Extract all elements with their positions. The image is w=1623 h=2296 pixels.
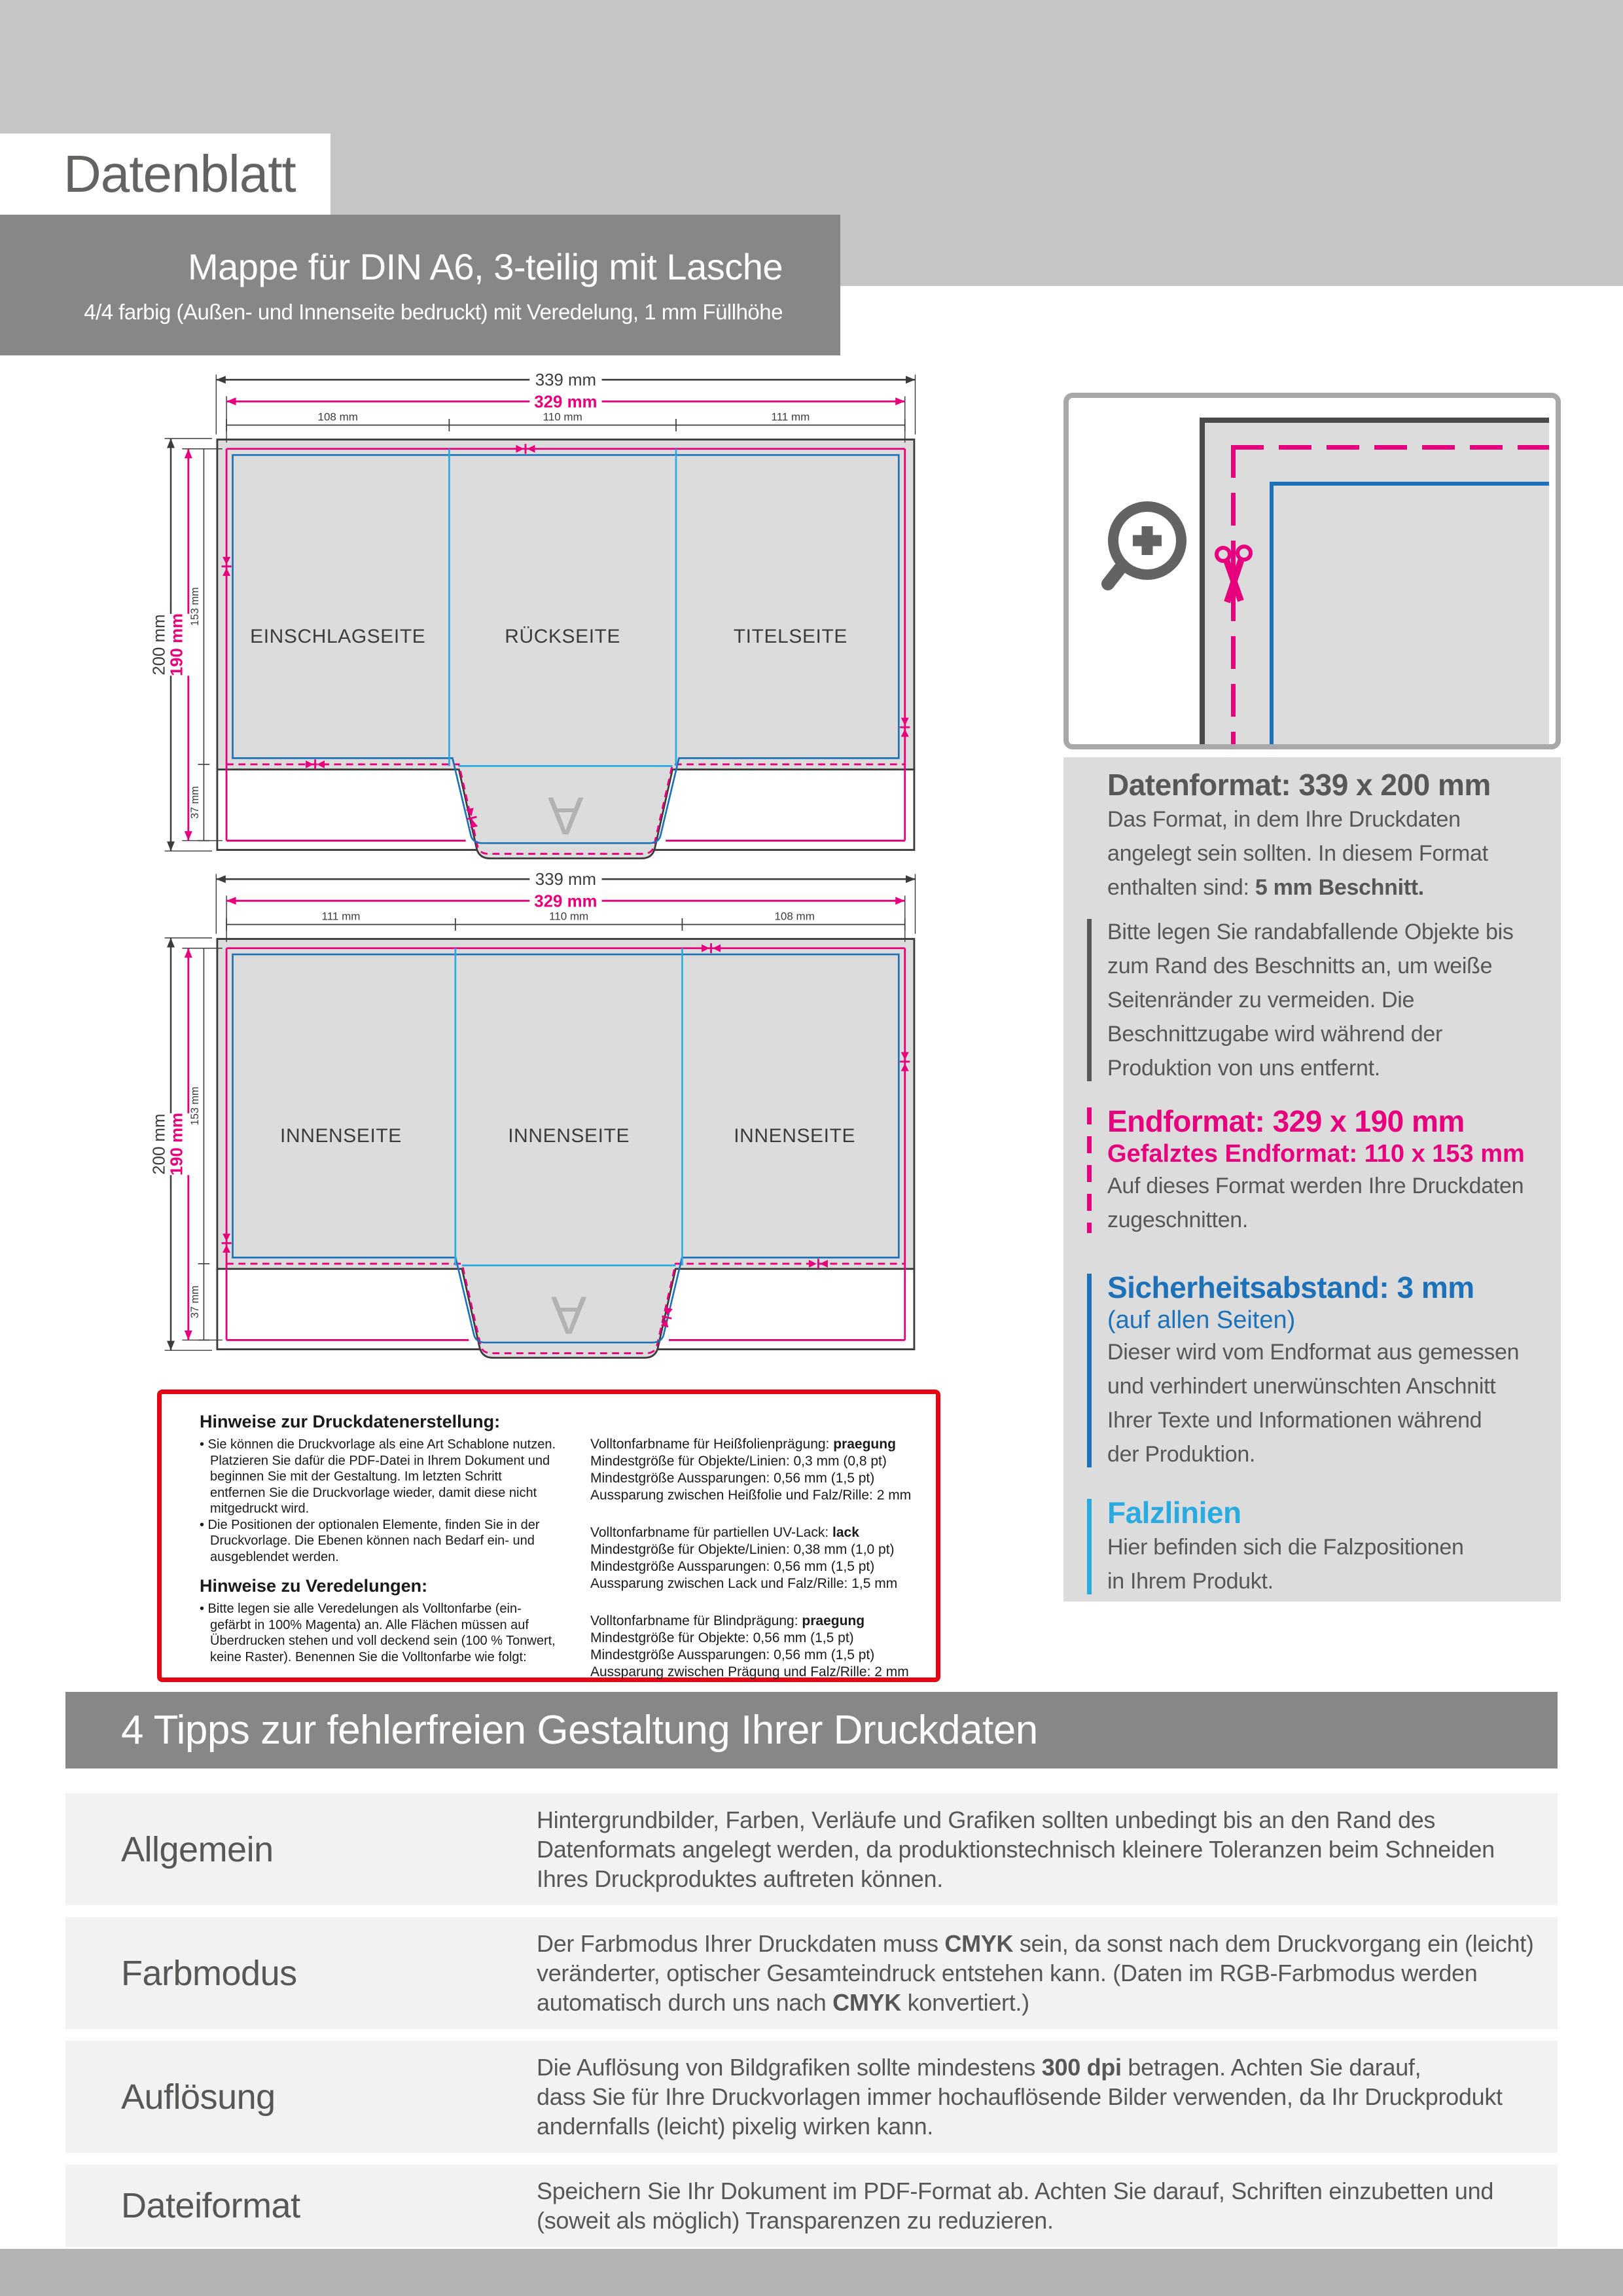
tips-section-title: 4 Tipps zur fehlerfreien Gestaltung Ihre… [65, 1707, 1038, 1753]
tip-row-text: Speichern Sie Ihr Dokument im PDF-Format… [537, 2164, 1558, 2247]
dim-label-col1: 108 mm [318, 410, 358, 423]
zoom-detail-box [1063, 393, 1561, 749]
dim-label-end-height: 190 mm [168, 613, 186, 676]
dim-line-panel-flap [198, 948, 210, 1340]
dim-line-panel-flap [198, 449, 210, 841]
dim-label-flap-height: 37 mm [189, 1285, 201, 1318]
tip-row: AllgemeinHintergrundbilder, Farben, Verl… [65, 1793, 1558, 1905]
info-block-heading: Datenformat: 339 x 200 mm [1107, 767, 1548, 802]
tips-rows: AllgemeinHintergrundbilder, Farben, Verl… [65, 1793, 1558, 2259]
info-block: Bitte legen Sie randabfallende Objekte b… [1087, 915, 1548, 1085]
notes-title: Hinweise zu Veredelungen: [200, 1575, 578, 1597]
panel-label-2: RÜCKSEITE [505, 626, 620, 647]
footer-band [0, 2249, 1623, 2296]
notes-spec-group: Volltonfarbname für Heißfolienprägung: p… [590, 1436, 931, 1504]
panel-label-1: EINSCHLAGSEITE [250, 626, 425, 647]
info-block-text: Dieser wird vom Endformat aus gemessenun… [1107, 1335, 1548, 1471]
dim-label-col2: 110 mm [543, 410, 582, 423]
product-subtitle: 4/4 farbig (Außen- und Innenseite bedruc… [84, 300, 783, 325]
dim-label-total-width: 339 mm [535, 870, 596, 889]
info-block: Datenformat: 339 x 200 mmDas Format, in … [1087, 767, 1548, 905]
info-block: Endformat: 329 x 190 mmGefalztes Endform… [1087, 1103, 1548, 1237]
info-block-heading: Sicherheitsabstand: 3 mm [1107, 1270, 1548, 1305]
diagram-inside: 339 mm 329 mm 111 mm 110 mm 108 mm 200 m… [130, 870, 936, 1375]
tip-row-label: Allgemein [121, 1829, 274, 1870]
dim-label-panel-height: 153 mm [189, 587, 201, 626]
info-block-heading: Endformat: 329 x 190 mm [1107, 1103, 1548, 1139]
bleed-area-sample [1205, 423, 1549, 744]
dim-label-col1: 111 mm [322, 910, 361, 922]
info-block-text: Bitte legen Sie randabfallende Objekte b… [1107, 915, 1548, 1085]
zoom-in-icon [1095, 490, 1193, 607]
notes-spec-group: Volltonfarbname für partiellen UV-Lack: … [590, 1524, 931, 1592]
panel-label-3: TITELSEITE [734, 626, 847, 647]
notes-bullet: • Bitte legen sie alle Veredelungen als … [200, 1601, 578, 1665]
trim-dashed-line-horizontal [1231, 445, 1549, 450]
product-title-bar: Mappe für DIN A6, 3-teilig mit Lasche 4/… [0, 215, 840, 355]
notes-right-column: Volltonfarbname für Heißfolienprägung: p… [590, 1436, 931, 1701]
info-panel-blocks: Datenformat: 339 x 200 mmDas Format, in … [1087, 767, 1548, 1598]
notes-spec-group: Volltonfarbname für Blindprägung: praegu… [590, 1613, 931, 1681]
print-data-notes-box: Hinweise zur Druckdatenerstellung:• Sie … [157, 1390, 940, 1682]
scissors-icon [1215, 543, 1253, 609]
dim-label-end-width: 329 mm [534, 393, 597, 411]
safety-line-vertical [1270, 482, 1274, 744]
info-block: Sicherheitsabstand: 3 mm(auf allen Seite… [1087, 1270, 1548, 1471]
tip-row-label: Farbmodus [121, 1953, 297, 1994]
notes-bullet: • Sie können die Druckvorlage als eine A… [200, 1437, 578, 1517]
notes-title: Hinweise zur Druckdatenerstellung: [200, 1411, 578, 1433]
dim-label-end-height: 190 mm [168, 1113, 186, 1175]
dim-label-total-height: 200 mm [151, 614, 169, 675]
notes-left-column: Hinweise zur Druckdatenerstellung:• Sie … [200, 1411, 578, 1665]
cut-edge-left [1200, 418, 1205, 744]
info-block-subheading: (auf allen Seiten) [1107, 1305, 1548, 1335]
info-block-subheading: Gefalztes Endformat: 110 x 153 mm [1107, 1139, 1548, 1169]
diagram-outside: 339 mm 329 mm 108 mm 110 mm 111 mm 200 m… [130, 370, 936, 876]
dim-label-col3: 108 mm [774, 910, 814, 922]
tips-section-header: 4 Tipps zur fehlerfreien Gestaltung Ihre… [65, 1692, 1558, 1768]
dim-label-col3: 111 mm [771, 410, 810, 423]
dim-label-flap-height: 37 mm [189, 786, 201, 819]
tab-letter: A [550, 1285, 586, 1344]
safety-line-horizontal [1270, 482, 1549, 486]
dim-label-total-height: 200 mm [151, 1113, 169, 1174]
info-block: FalzlinienHier befinden sich die Falzpos… [1087, 1495, 1548, 1598]
tip-row: AuflösungDie Auflösung von Bildgrafiken … [65, 2041, 1558, 2153]
tip-row-text: Der Farbmodus Ihrer Druckdaten muss CMYK… [537, 1917, 1558, 2029]
tip-row: FarbmodusDer Farbmodus Ihrer Druckdaten … [65, 1917, 1558, 2029]
cut-edge-top [1200, 418, 1549, 423]
tip-row-label: Auflösung [121, 2077, 276, 2117]
panel-label-3: INNENSEITE [734, 1125, 855, 1147]
sheet-label-band: Datenblatt [0, 134, 330, 215]
info-block-text: Hier befinden sich die Falzpositionenin … [1107, 1530, 1548, 1598]
panel-label-2: INNENSEITE [508, 1125, 630, 1147]
tip-row-label: Dateiformat [121, 2185, 300, 2226]
product-title: Mappe für DIN A6, 3-teilig mit Lasche [188, 245, 783, 288]
tip-row-text: Hintergrundbilder, Farben, Verläufe und … [537, 1793, 1558, 1905]
dim-label-end-width: 329 mm [534, 892, 597, 910]
info-block-heading: Falzlinien [1107, 1495, 1548, 1530]
tip-row-text: Die Auflösung von Bildgrafiken sollte mi… [537, 2041, 1558, 2153]
panel-label-1: INNENSEITE [280, 1125, 402, 1147]
info-block-text: Auf dieses Format werden Ihre Druckdaten… [1107, 1169, 1548, 1237]
dim-label-panel-height: 153 mm [189, 1086, 201, 1125]
tab-letter: A [548, 785, 584, 845]
dim-label-total-width: 339 mm [535, 371, 596, 389]
tip-row: DateiformatSpeichern Sie Ihr Dokument im… [65, 2164, 1558, 2247]
format-info-panel: Datenformat: 339 x 200 mmDas Format, in … [1063, 757, 1561, 1602]
sheet-label: Datenblatt [0, 144, 296, 204]
notes-bullet: • Die Positionen der optionalen Elemente… [200, 1517, 578, 1566]
dim-label-col2: 110 mm [549, 910, 588, 922]
datasheet-page: { "colors": { "magenta": "#e6007e", "blu… [0, 0, 1623, 2296]
info-block-text: Das Format, in dem Ihre Druckdatenangele… [1107, 802, 1548, 905]
